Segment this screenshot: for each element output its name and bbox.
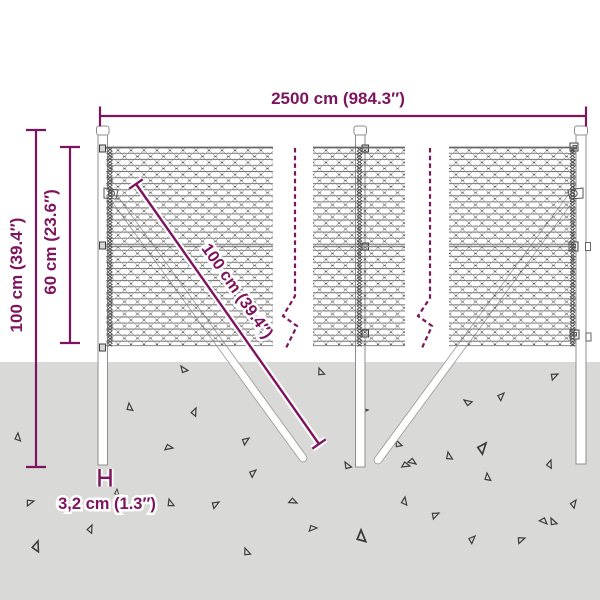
svg-text:60 cm (23.6″): 60 cm (23.6″) xyxy=(41,189,60,294)
svg-text:2500 cm (984.3″): 2500 cm (984.3″) xyxy=(271,89,405,108)
svg-text:100 cm (39.4″): 100 cm (39.4″) xyxy=(7,218,26,333)
svg-text:3,2 cm (1.3″): 3,2 cm (1.3″) xyxy=(58,495,156,513)
